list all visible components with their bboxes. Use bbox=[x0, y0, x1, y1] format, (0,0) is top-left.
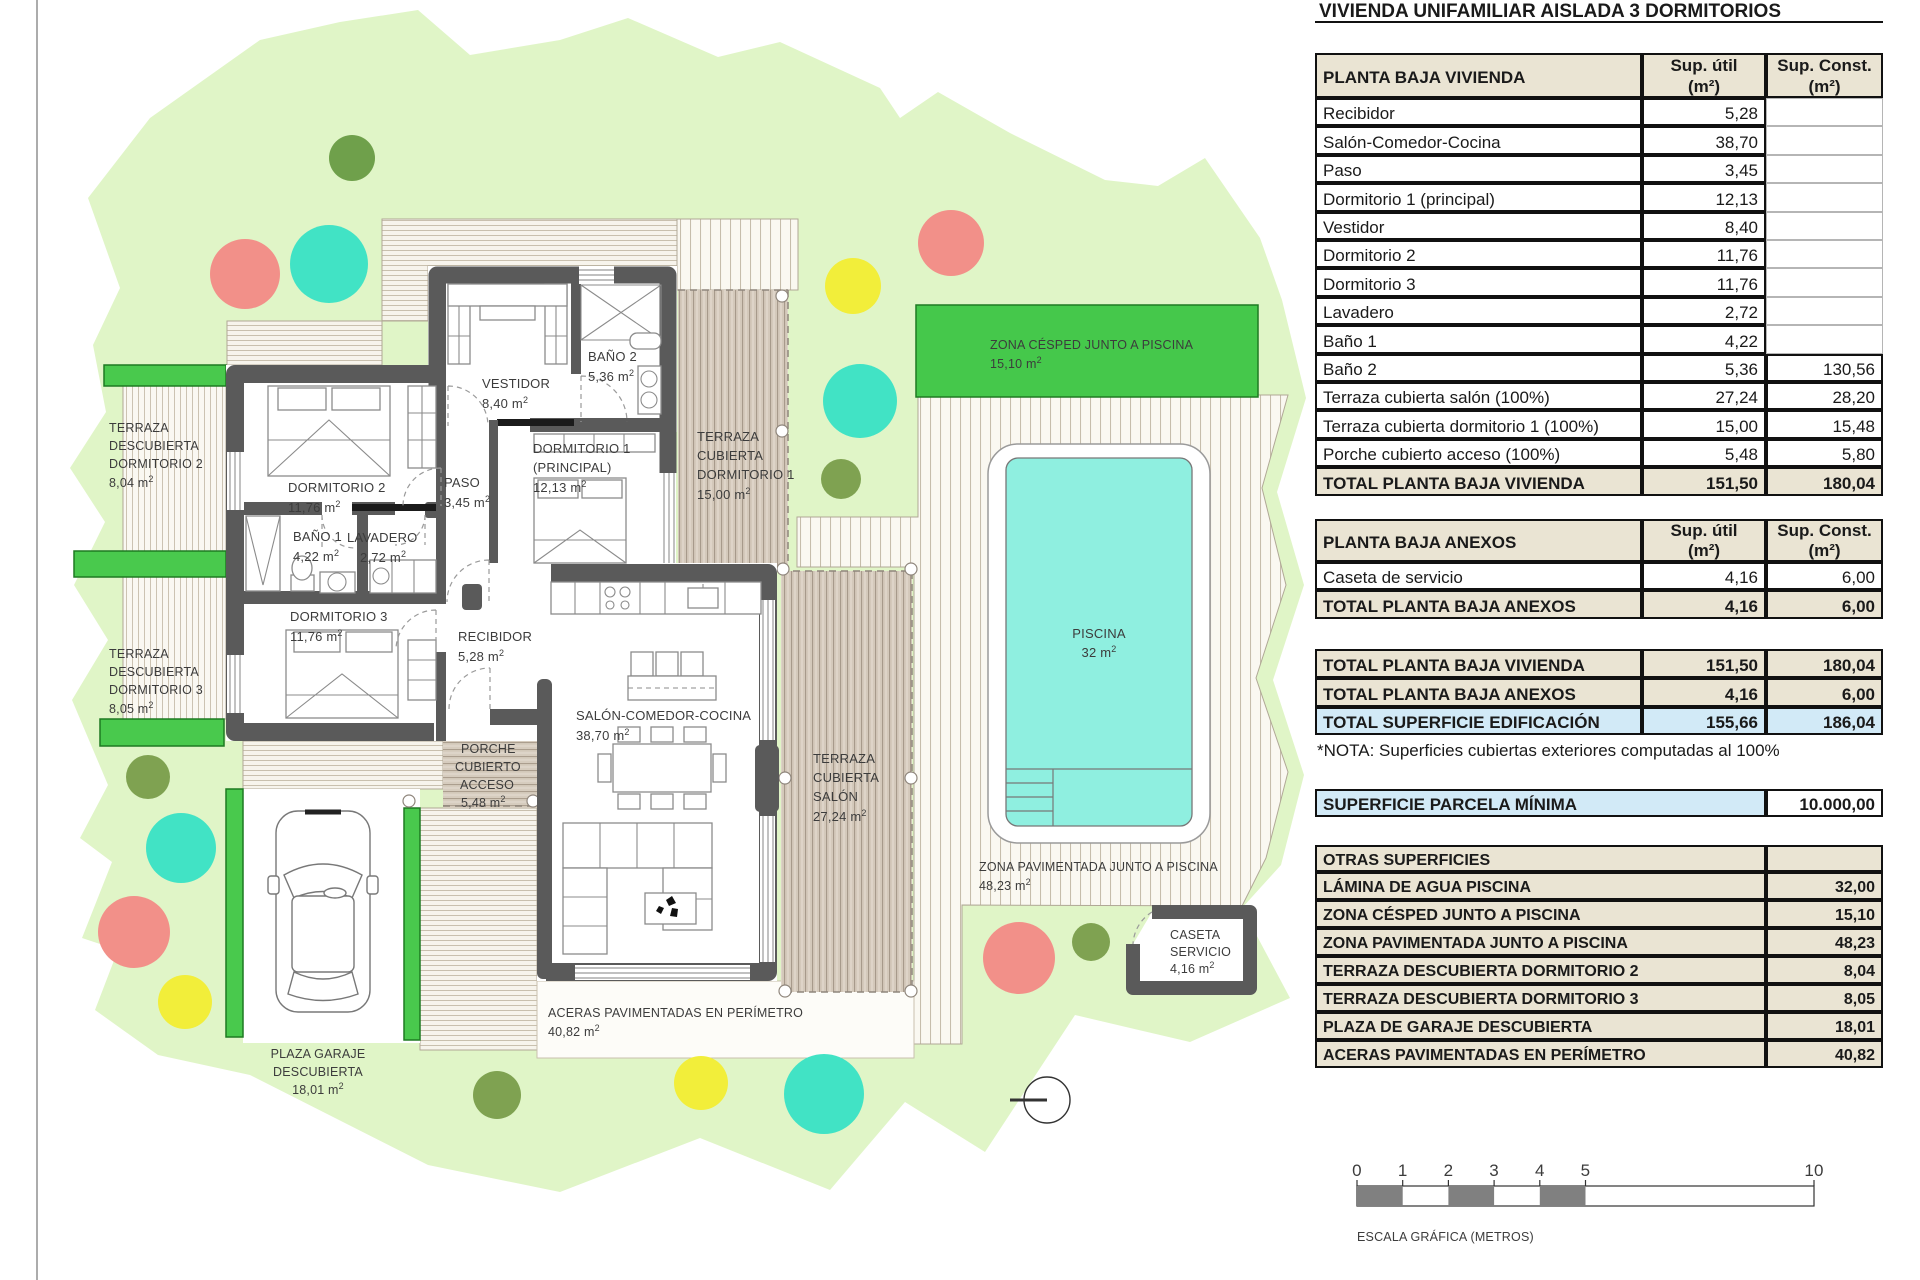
svg-text:38,70 m2: 38,70 m2 bbox=[576, 727, 630, 743]
svg-text:DESCUBIERTA: DESCUBIERTA bbox=[273, 1065, 363, 1079]
svg-text:CUBIERTA: CUBIERTA bbox=[697, 448, 763, 463]
svg-text:DORMITORIO 2: DORMITORIO 2 bbox=[288, 480, 386, 495]
svg-text:DORMITORIO 1: DORMITORIO 1 bbox=[697, 467, 795, 482]
svg-text:2,72 m2: 2,72 m2 bbox=[360, 549, 406, 565]
svg-text:CUBIERTA: CUBIERTA bbox=[813, 770, 879, 785]
svg-text:48,23 m2: 48,23 m2 bbox=[979, 877, 1031, 893]
svg-text:0: 0 bbox=[1352, 1161, 1362, 1180]
svg-text:3: 3 bbox=[1489, 1161, 1499, 1180]
svg-text:PISCINA: PISCINA bbox=[1072, 626, 1126, 641]
svg-text:40,82 m2: 40,82 m2 bbox=[548, 1023, 600, 1039]
svg-text:8,05 m2: 8,05 m2 bbox=[109, 700, 154, 716]
svg-text:LAVADERO: LAVADERO bbox=[347, 530, 417, 545]
svg-text:PLAZA GARAJE: PLAZA GARAJE bbox=[271, 1047, 366, 1061]
svg-text:5,28 m2: 5,28 m2 bbox=[458, 648, 504, 664]
svg-text:11,76 m2: 11,76 m2 bbox=[288, 499, 341, 515]
svg-text:TERRAZA: TERRAZA bbox=[813, 751, 875, 766]
svg-text:ESCALA GRÁFICA (METROS): ESCALA GRÁFICA (METROS) bbox=[1357, 1229, 1534, 1244]
svg-text:PASO: PASO bbox=[444, 475, 480, 490]
svg-text:TERRAZA: TERRAZA bbox=[697, 429, 759, 444]
svg-text:ACCESO: ACCESO bbox=[460, 778, 514, 792]
svg-text:ZONA PAVIMENTADA JUNTO A PISCI: ZONA PAVIMENTADA JUNTO A PISCINA bbox=[979, 860, 1218, 874]
svg-text:BAÑO 1: BAÑO 1 bbox=[293, 529, 342, 544]
svg-text:1: 1 bbox=[1398, 1161, 1408, 1180]
svg-text:BAÑO 2: BAÑO 2 bbox=[588, 349, 637, 364]
svg-text:(PRINCIPAL): (PRINCIPAL) bbox=[533, 460, 612, 475]
svg-text:8,04 m2: 8,04 m2 bbox=[109, 474, 154, 490]
svg-text:DORMITORIO 3: DORMITORIO 3 bbox=[109, 683, 203, 697]
svg-text:SERVICIO: SERVICIO bbox=[1170, 945, 1231, 959]
svg-text:4: 4 bbox=[1535, 1161, 1545, 1180]
svg-text:SALÓN-COMEDOR-COCINA: SALÓN-COMEDOR-COCINA bbox=[576, 708, 751, 723]
svg-text:4,16 m2: 4,16 m2 bbox=[1170, 960, 1215, 976]
svg-text:5: 5 bbox=[1581, 1161, 1591, 1180]
svg-text:DORMITORIO 1: DORMITORIO 1 bbox=[533, 441, 631, 456]
svg-text:15,00 m2: 15,00 m2 bbox=[697, 486, 751, 502]
svg-text:8,40 m2: 8,40 m2 bbox=[482, 395, 528, 411]
svg-text:ZONA CÉSPED JUNTO A PISCINA: ZONA CÉSPED JUNTO A PISCINA bbox=[990, 337, 1194, 352]
svg-text:DESCUBIERTA: DESCUBIERTA bbox=[109, 439, 199, 453]
svg-text:TERRAZA: TERRAZA bbox=[109, 647, 169, 661]
svg-text:VESTIDOR: VESTIDOR bbox=[482, 376, 550, 391]
svg-text:DESCUBIERTA: DESCUBIERTA bbox=[109, 665, 199, 679]
svg-text:32 m2: 32 m2 bbox=[1082, 644, 1117, 660]
svg-text:10: 10 bbox=[1804, 1161, 1823, 1180]
svg-text:DORMITORIO 2: DORMITORIO 2 bbox=[109, 457, 203, 471]
svg-text:3,45 m2: 3,45 m2 bbox=[444, 494, 490, 510]
svg-text:RECIBIDOR: RECIBIDOR bbox=[458, 629, 532, 644]
svg-text:4,22 m2: 4,22 m2 bbox=[293, 548, 339, 564]
svg-text:SALÓN: SALÓN bbox=[813, 789, 858, 804]
svg-text:11,76 m2: 11,76 m2 bbox=[290, 628, 343, 644]
svg-text:18,01 m2: 18,01 m2 bbox=[292, 1081, 344, 1097]
svg-text:PORCHE: PORCHE bbox=[461, 742, 516, 756]
svg-text:2: 2 bbox=[1444, 1161, 1454, 1180]
svg-text:12,13 m2: 12,13 m2 bbox=[533, 479, 587, 495]
svg-text:DORMITORIO 3: DORMITORIO 3 bbox=[290, 609, 388, 624]
svg-text:TERRAZA: TERRAZA bbox=[109, 421, 169, 435]
svg-text:15,10 m2: 15,10 m2 bbox=[990, 355, 1042, 371]
svg-text:ACERAS PAVIMENTADAS EN PERÍMET: ACERAS PAVIMENTADAS EN PERÍMETRO bbox=[548, 1005, 803, 1020]
svg-text:CASETA: CASETA bbox=[1170, 928, 1221, 942]
svg-text:5,48 m2: 5,48 m2 bbox=[461, 794, 506, 810]
svg-text:27,24 m2: 27,24 m2 bbox=[813, 808, 867, 824]
svg-text:5,36 m2: 5,36 m2 bbox=[588, 368, 634, 384]
svg-text:CUBIERTO: CUBIERTO bbox=[455, 760, 521, 774]
